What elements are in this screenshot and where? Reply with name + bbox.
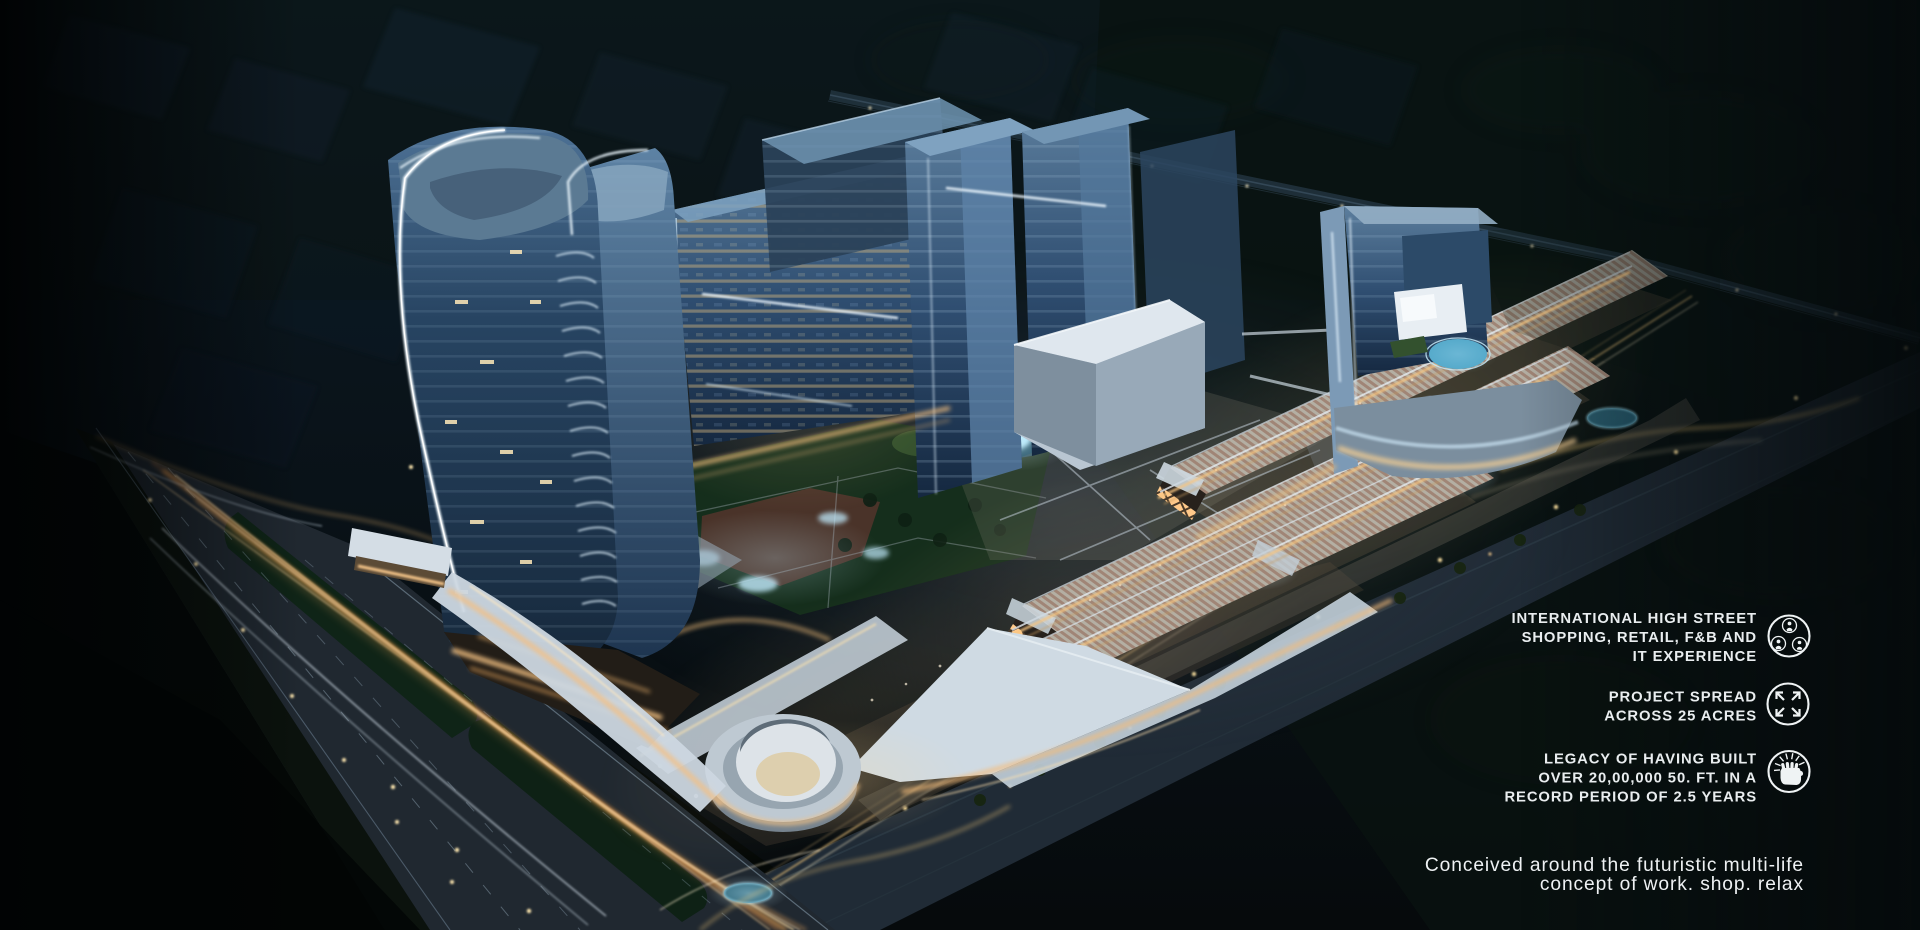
- svg-text:OVER 20,00,000 50. FT. IN A: OVER 20,00,000 50. FT. IN A: [1538, 771, 1757, 787]
- svg-text:ACROSS 25 ACRES: ACROSS 25 ACRES: [1604, 709, 1757, 725]
- svg-text:PROJECT SPREAD: PROJECT SPREAD: [1609, 690, 1757, 706]
- svg-text:Conceived around the futuristi: Conceived around the futuristic multi-li…: [1425, 855, 1804, 876]
- svg-text:LEGACY OF HAVING BUILT: LEGACY OF HAVING BUILT: [1544, 752, 1757, 768]
- svg-text:INTERNATIONAL HIGH STREET: INTERNATIONAL HIGH STREET: [1511, 611, 1757, 627]
- svg-text:SHOPPING, RETAIL, F&B AND: SHOPPING, RETAIL, F&B AND: [1522, 630, 1757, 646]
- svg-text:IT EXPERIENCE: IT EXPERIENCE: [1633, 649, 1757, 665]
- svg-text:RECORD PERIOD OF 2.5 YEARS: RECORD PERIOD OF 2.5 YEARS: [1504, 790, 1757, 806]
- svg-text:concept of work. shop. relax: concept of work. shop. relax: [1540, 874, 1804, 895]
